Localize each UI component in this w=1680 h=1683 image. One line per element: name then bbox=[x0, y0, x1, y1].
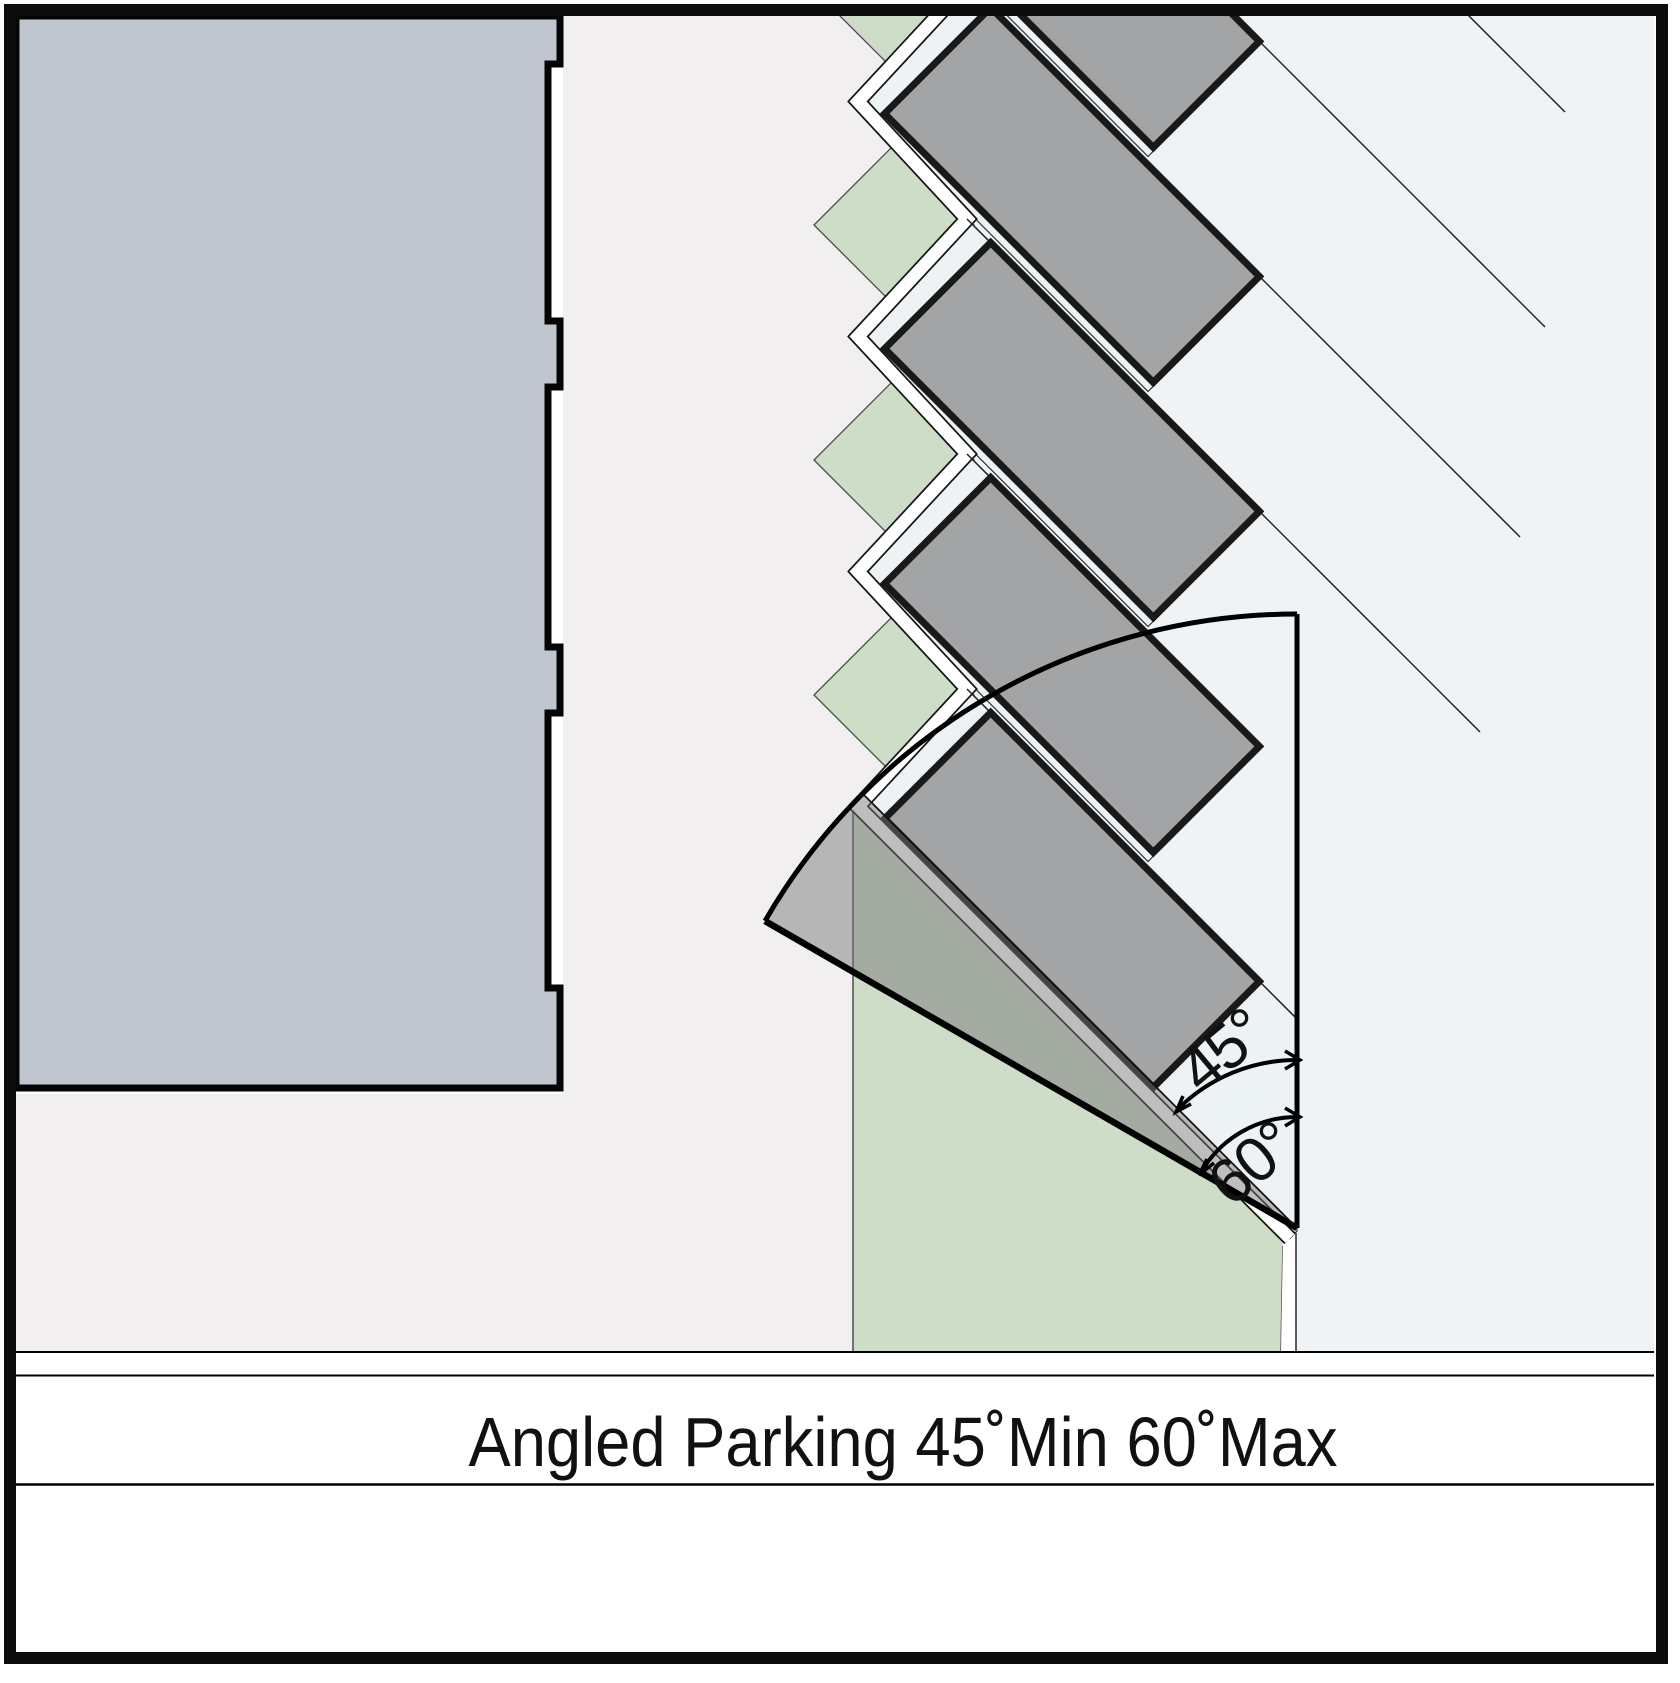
figure-caption: Angled Parking 45˚Min 60˚Max bbox=[469, 1403, 1338, 1481]
angled-parking-diagram: 45° 60° Angled Parking 45˚Min 60˚Max bbox=[0, 0, 1680, 1683]
site-plan-drawing bbox=[16, 0, 1654, 1352]
site-plan-page: 45° 60° Angled Parking 45˚Min 60˚Max bbox=[0, 0, 1680, 1683]
street-gap bbox=[1281, 1232, 1297, 1352]
building-footprint bbox=[16, 16, 560, 1088]
